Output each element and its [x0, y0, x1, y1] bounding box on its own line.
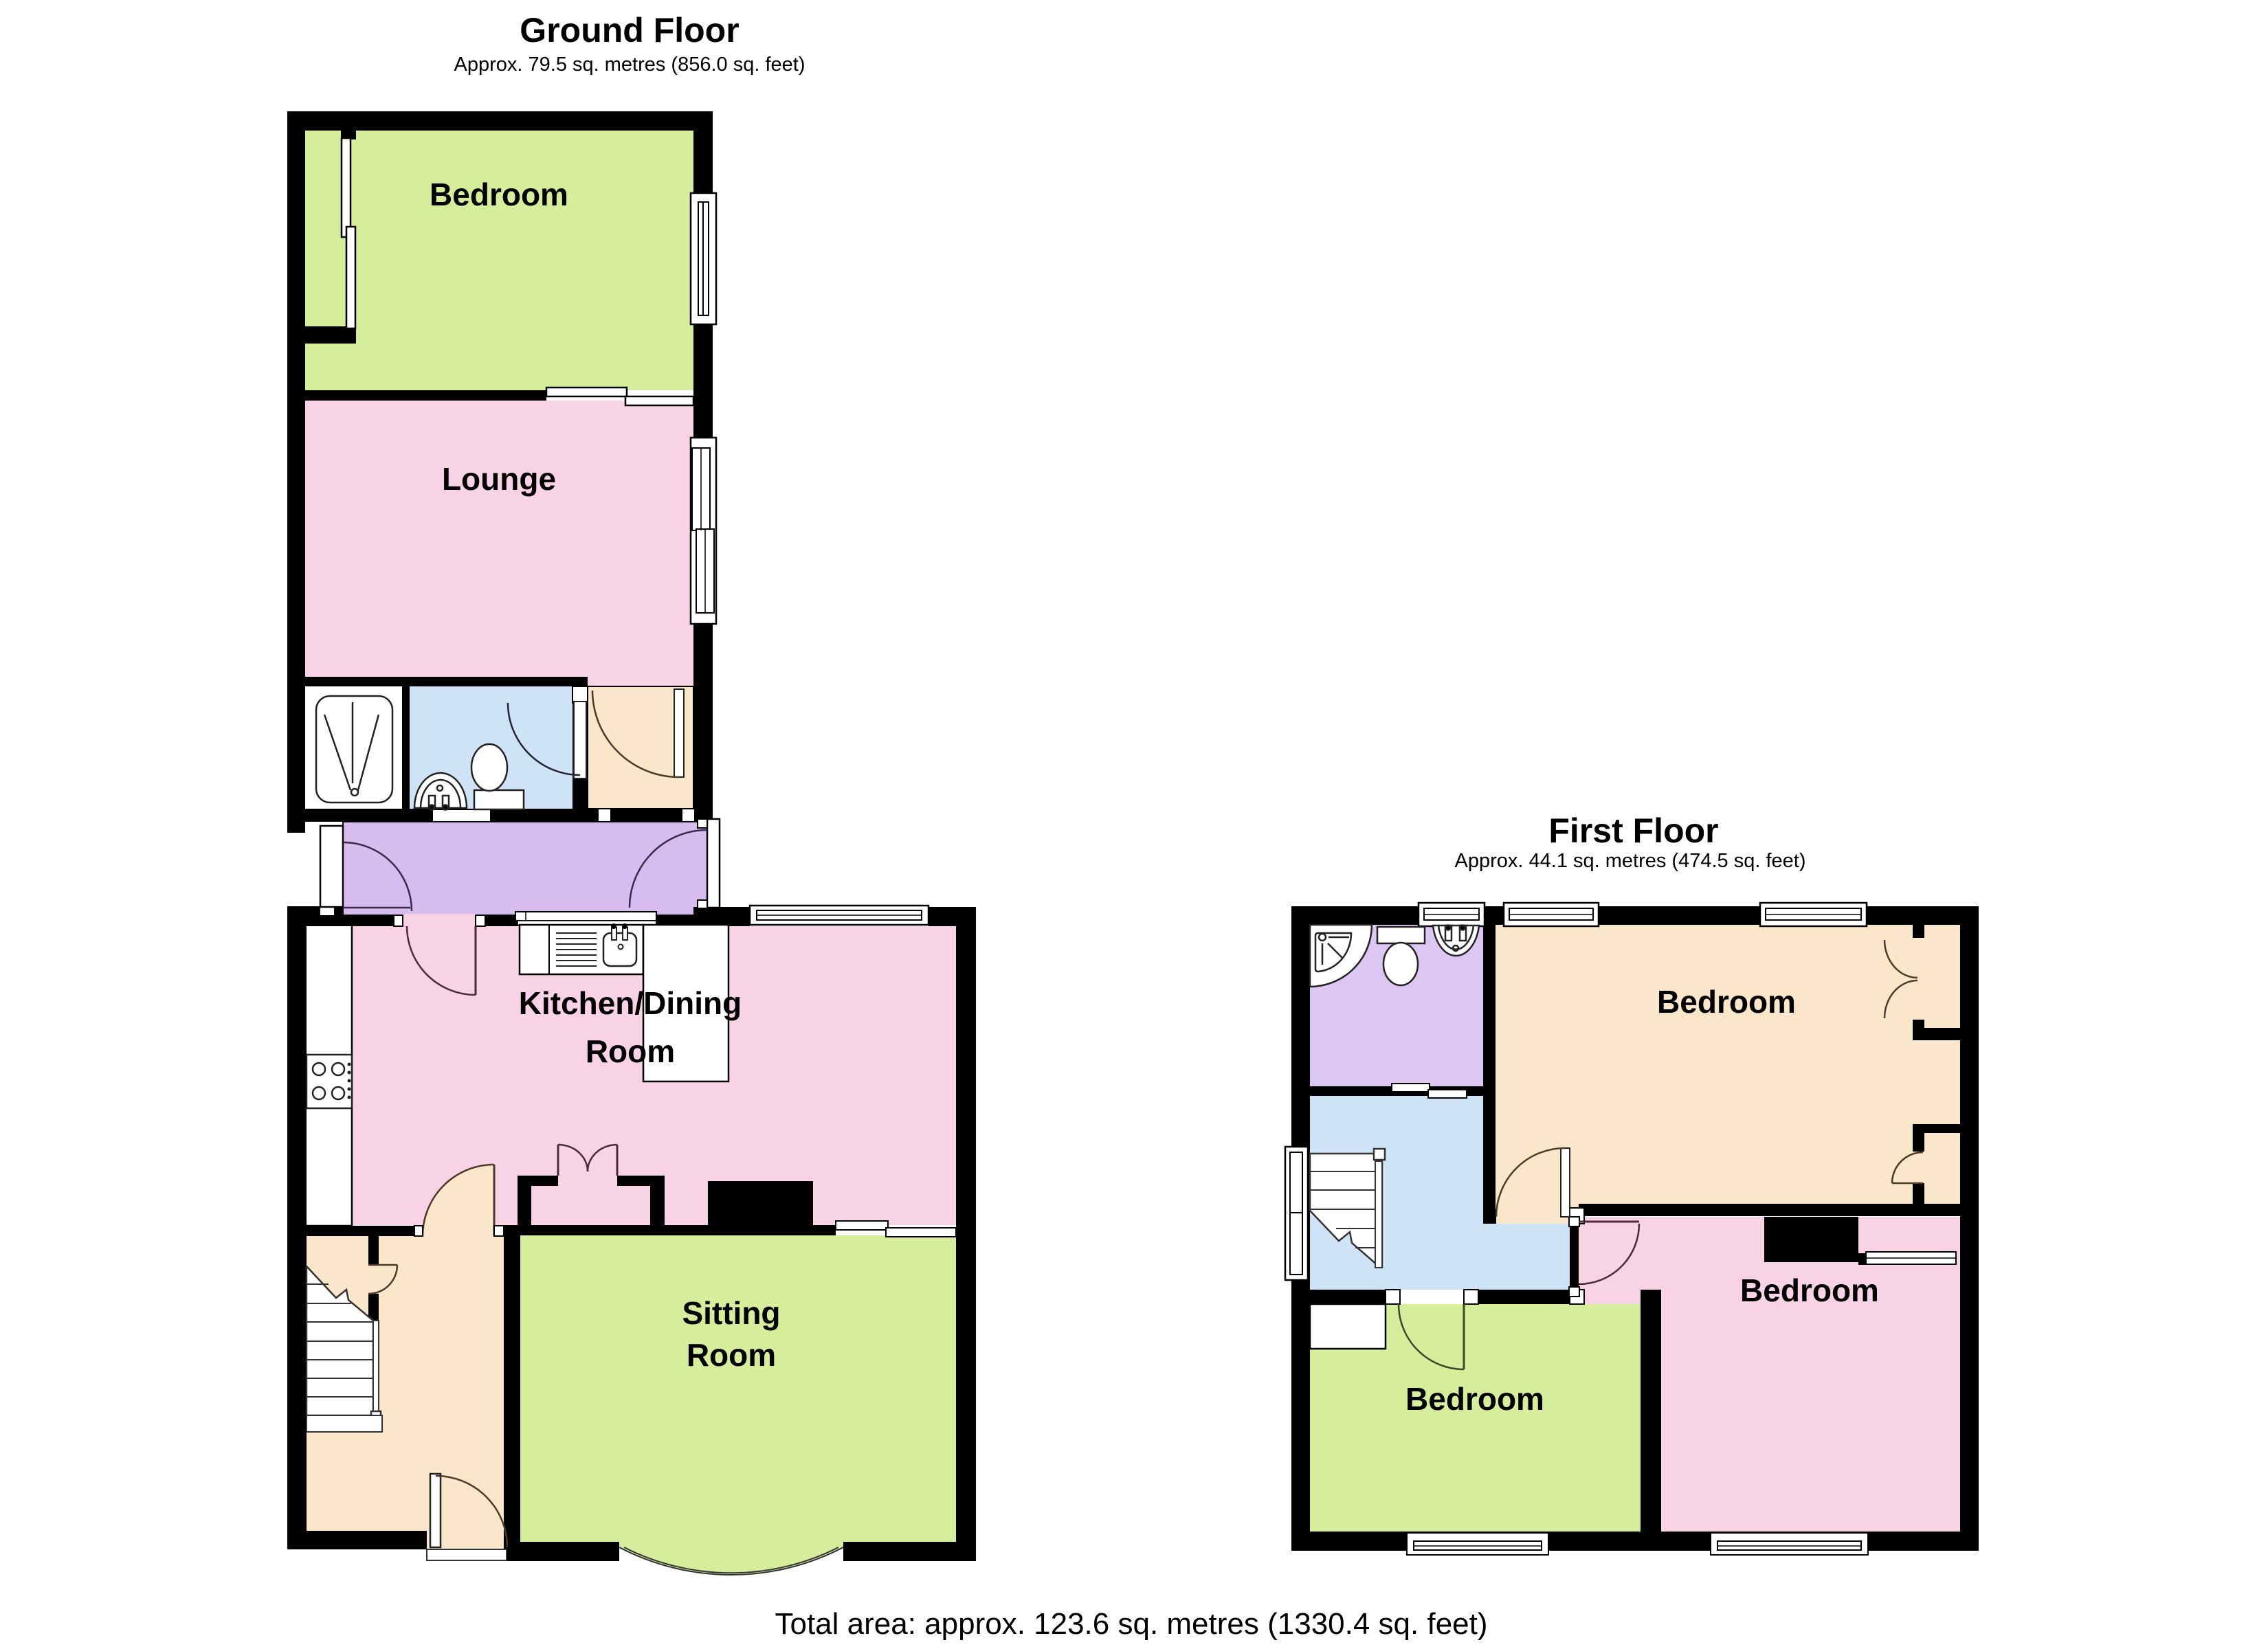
svg-text:Bedroom: Bedroom	[430, 177, 568, 212]
svg-text:First Floor: First Floor	[1548, 811, 1718, 850]
svg-text:Bedroom: Bedroom	[1657, 984, 1796, 1020]
svg-text:Bedroom: Bedroom	[1740, 1272, 1879, 1308]
svg-text:Kitchen/Dining: Kitchen/Dining	[519, 985, 742, 1021]
svg-text:Ground Floor: Ground Floor	[520, 11, 739, 49]
svg-text:Room: Room	[586, 1033, 675, 1069]
svg-text:Approx. 44.1 sq. metres (474.5: Approx. 44.1 sq. metres (474.5 sq. feet)	[1455, 850, 1806, 872]
svg-text:Lounge: Lounge	[442, 461, 556, 497]
svg-text:Sitting: Sitting	[682, 1295, 780, 1331]
svg-text:Bedroom: Bedroom	[1405, 1381, 1544, 1417]
svg-text:Total area: approx. 123.6 sq.: Total area: approx. 123.6 sq. metres (13…	[775, 1607, 1487, 1641]
svg-text:Room: Room	[687, 1337, 776, 1373]
svg-text:Approx. 79.5 sq. metres (856.0: Approx. 79.5 sq. metres (856.0 sq. feet)	[454, 54, 805, 76]
